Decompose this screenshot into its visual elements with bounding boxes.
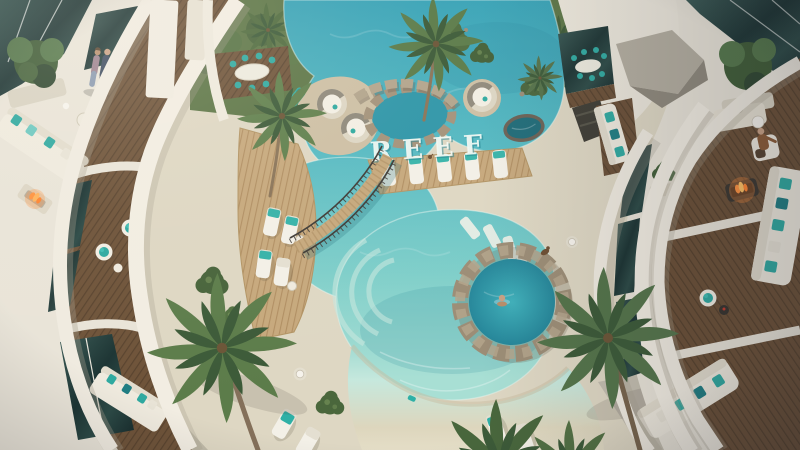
vignette: [0, 0, 800, 450]
scene-svg: REEF REEF: [0, 0, 800, 450]
rendering-canvas: REEF REEF: [0, 0, 800, 450]
